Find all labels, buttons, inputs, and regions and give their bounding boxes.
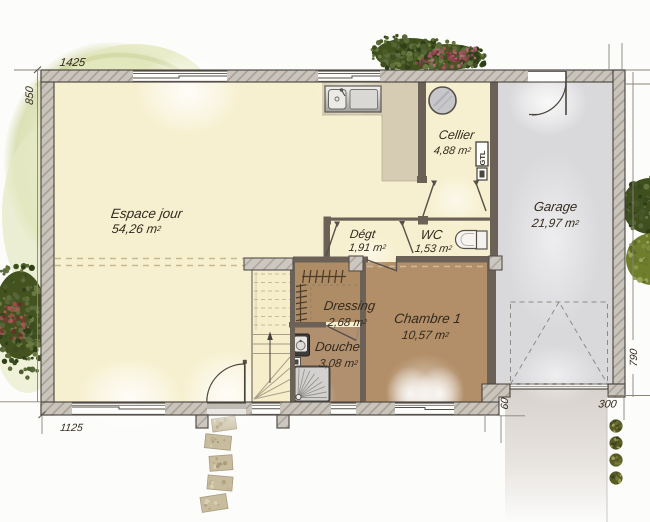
svg-text:850: 850 (24, 85, 36, 106)
svg-text:790: 790 (628, 348, 640, 367)
svg-text:GTL: GTL (478, 150, 487, 165)
svg-text:Garage: Garage (533, 199, 578, 214)
svg-text:300: 300 (597, 399, 618, 411)
svg-text:10,57 m2: 10,57 m2 (401, 328, 450, 342)
svg-text:1,53 m2: 1,53 m2 (414, 243, 453, 255)
svg-text:1425: 1425 (59, 57, 87, 69)
svg-text:Chambre 1: Chambre 1 (393, 311, 462, 326)
svg-text:4,88 m2: 4,88 m2 (433, 145, 472, 157)
svg-text:Cellier: Cellier (438, 128, 476, 142)
svg-text:1,91 m2: 1,91 m2 (348, 242, 387, 254)
svg-text:1125: 1125 (59, 422, 83, 434)
svg-text:2,68 m2: 2,68 m2 (326, 317, 368, 329)
svg-text:Douche: Douche (314, 339, 361, 354)
svg-text:21,97 m2: 21,97 m2 (530, 216, 580, 230)
svg-text:WC: WC (420, 227, 444, 242)
svg-text:60: 60 (499, 397, 511, 410)
svg-text:Espace jour: Espace jour (110, 206, 184, 221)
svg-text:Dressing: Dressing (323, 298, 377, 313)
svg-text:Dégt: Dégt (349, 227, 377, 241)
svg-text:3,08 m2: 3,08 m2 (318, 358, 359, 370)
svg-text:54,26 m2: 54,26 m2 (111, 222, 163, 236)
